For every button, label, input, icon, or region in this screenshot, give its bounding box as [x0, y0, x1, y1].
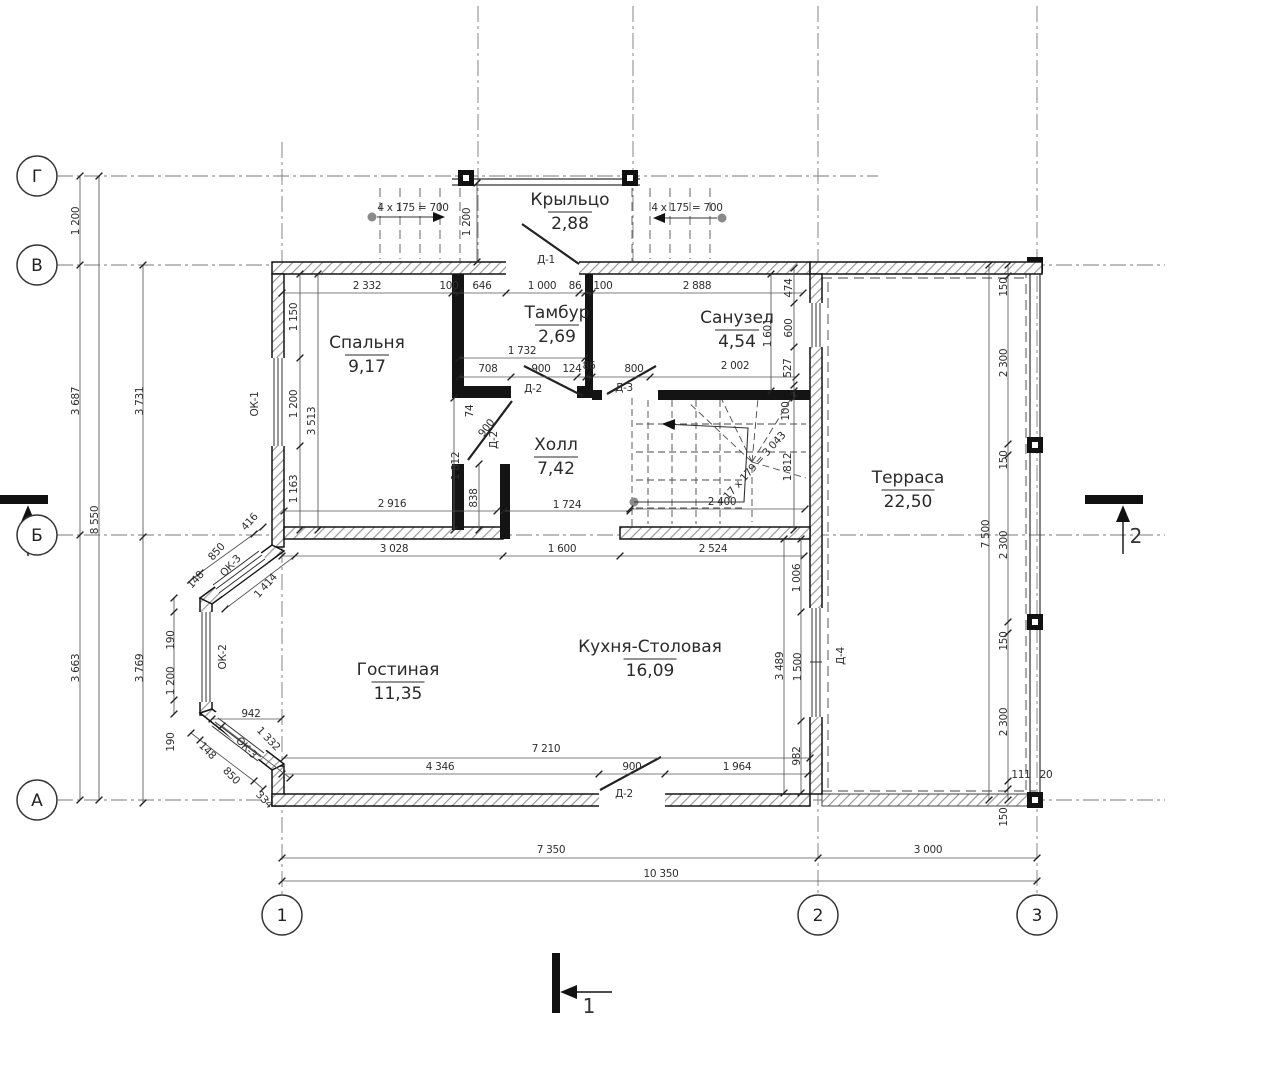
dim-text: 3 663: [70, 654, 82, 683]
dim-text: 646: [472, 280, 492, 292]
room-name: Холл: [534, 435, 578, 455]
dim-text: 3 769: [134, 654, 146, 683]
dim-text: 7 350: [537, 844, 566, 856]
dim-text: 3 028: [380, 543, 409, 555]
room-area: 22,50: [884, 492, 933, 512]
dim-text: 100: [439, 280, 458, 292]
dim-text: Д-2: [524, 383, 542, 395]
dim-text: Д-3: [615, 382, 633, 394]
room-area: 2,88: [551, 214, 589, 234]
dim-text: 4 346: [426, 761, 455, 773]
dim-text: 150: [998, 807, 1010, 826]
dim-text: 2 300: [998, 349, 1010, 378]
room-name: Спальня: [329, 333, 405, 353]
porch: [368, 170, 727, 261]
dim-text: 148: [185, 569, 207, 591]
dim-text: 3 731: [134, 387, 146, 416]
floor-plan-canvas: ГВБА123 Крыльцо2,88Тамбур2,69Спальня9,17…: [0, 0, 1261, 1080]
dim-text: 1 200: [288, 390, 300, 419]
dim-text: 527: [782, 358, 794, 377]
dim-text: 10 350: [644, 868, 679, 880]
dim-text: 7 500: [980, 520, 992, 549]
dim-text: 850: [220, 765, 242, 787]
room-area: 7,42: [537, 459, 575, 479]
axis-row-label: А: [31, 791, 43, 811]
dim-text: 900: [531, 363, 550, 375]
dim-text: ОК-1: [249, 392, 261, 417]
dim-text: 150: [998, 277, 1010, 296]
dim-text: Д-2: [488, 431, 500, 449]
room-area: 2,69: [538, 327, 576, 347]
axis-col-label: 3: [1032, 906, 1043, 926]
dim-text: 1 150: [288, 303, 300, 332]
dim-text: 3 000: [914, 844, 943, 856]
dim-text: 1 200: [70, 207, 82, 236]
dim-text: 7 210: [532, 743, 561, 755]
section-label-1: 1: [583, 994, 596, 1018]
dim-text: 1 163: [288, 475, 300, 504]
section-label-2: 2: [1130, 524, 1143, 548]
room-area: 11,35: [374, 684, 423, 704]
dim-text: 1 964: [723, 761, 752, 773]
dim-text: 708: [478, 363, 497, 375]
dim-text: 900: [622, 761, 641, 773]
porch-posts: [458, 170, 638, 186]
dim-text: 1 500: [792, 653, 804, 682]
dim-text: 74: [464, 404, 476, 417]
dim-text: Д-2: [615, 788, 633, 800]
dim-text: 1 724: [553, 499, 582, 511]
dim-text: 86: [583, 360, 596, 372]
room-name: Терраса: [871, 468, 945, 488]
dim-text: 100: [593, 280, 612, 292]
dim-text: 150: [998, 631, 1010, 650]
axis-row-label: В: [31, 256, 43, 276]
dim-text: 124: [562, 363, 582, 375]
dim-text: 942: [241, 708, 260, 720]
dim-text: 800: [624, 363, 643, 375]
dim-text: Д-1: [537, 254, 555, 266]
dim-text: 3 513: [306, 407, 318, 436]
dim-text: 2 888: [683, 280, 712, 292]
dim-text: 1 200: [461, 208, 473, 237]
section-labels: 21: [583, 524, 1143, 1018]
dim-text: 190: [165, 630, 177, 649]
dim-text: 8 550: [89, 506, 101, 535]
dim-text: 1 812: [782, 453, 794, 482]
dim-text: 1 601: [762, 319, 774, 348]
dim-text: 100: [780, 401, 792, 420]
room-area: 16,09: [626, 661, 675, 681]
dim-text: 1 000: [528, 280, 557, 292]
dim-text: 111: [1011, 769, 1030, 781]
dim-text: 20: [1040, 769, 1053, 781]
dim-text: 1 600: [548, 543, 577, 555]
dim-text: 1 812: [450, 452, 462, 481]
dim-text: 2 524: [699, 543, 728, 555]
dim-text: 416: [239, 510, 261, 533]
dim-text: 2 300: [998, 708, 1010, 737]
dim-text: 474: [783, 278, 795, 298]
dim-text: Д-4: [835, 646, 847, 664]
dim-text: 4 x 175 = 700: [651, 202, 722, 214]
dim-text: 148: [196, 740, 218, 762]
dim-text: 86: [569, 280, 582, 292]
dim-text: 850: [206, 541, 228, 563]
room-name: Гостиная: [357, 660, 440, 680]
dim-text: 1 006: [791, 563, 803, 592]
axis-col-label: 2: [813, 906, 824, 926]
axis-col-label: 1: [277, 906, 288, 926]
dim-text: 838: [468, 488, 480, 507]
dim-text: 2 300: [998, 531, 1010, 560]
dim-text: 3 489: [774, 652, 786, 681]
dim-text: 2 916: [378, 498, 407, 510]
dim-text: 600: [783, 318, 795, 337]
dim-text: 1 200: [165, 667, 177, 696]
dim-text: 1 732: [508, 345, 537, 357]
room-name: Тамбур: [524, 303, 590, 323]
floor-plan-page: ГВБА123 Крыльцо2,88Тамбур2,69Спальня9,17…: [0, 0, 1261, 1080]
dim-text: 2 002: [721, 360, 750, 372]
dim-text: 3 687: [70, 387, 82, 416]
section-marks: [0, 495, 1143, 1013]
room-area: 4,54: [718, 332, 756, 352]
dim-text: 150: [998, 450, 1010, 469]
room-name: Кухня-Столовая: [578, 637, 722, 657]
dim-text: 4 x 175 = 700: [377, 202, 448, 214]
step-annotations: [368, 213, 727, 223]
room-area: 9,17: [348, 357, 386, 377]
exterior-walls: [200, 262, 1042, 806]
dim-text: 982: [791, 746, 803, 765]
axis-row-label: Г: [32, 167, 42, 187]
axis-row-label: Б: [31, 526, 43, 546]
dim-text: 2 332: [353, 280, 382, 292]
dim-text: 17 x 179 = 3 043: [721, 430, 788, 503]
dim-text: 190: [165, 732, 177, 751]
room-name: Крыльцо: [530, 190, 609, 210]
dim-text: ОК-2: [217, 645, 229, 670]
